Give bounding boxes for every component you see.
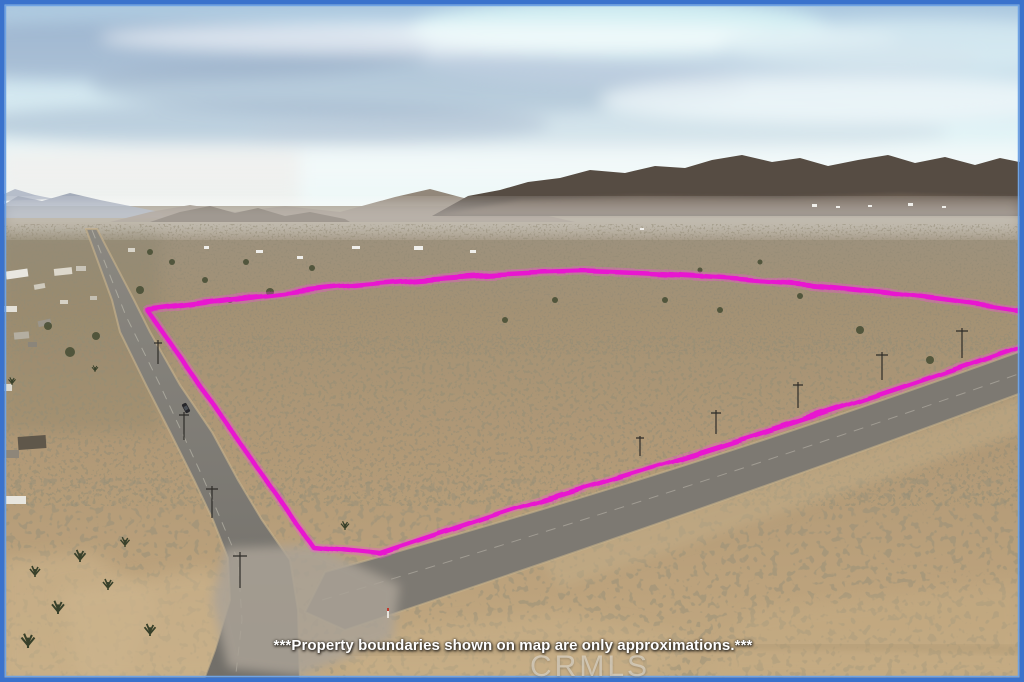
aerial-photo-scene <box>0 0 1024 682</box>
listing-photo: ***Property boundaries shown on map are … <box>0 0 1024 682</box>
disclaimer-text: ***Property boundaries shown on map are … <box>274 637 753 654</box>
road-marker <box>387 608 389 618</box>
crmls-watermark: CRMLS <box>530 650 650 682</box>
